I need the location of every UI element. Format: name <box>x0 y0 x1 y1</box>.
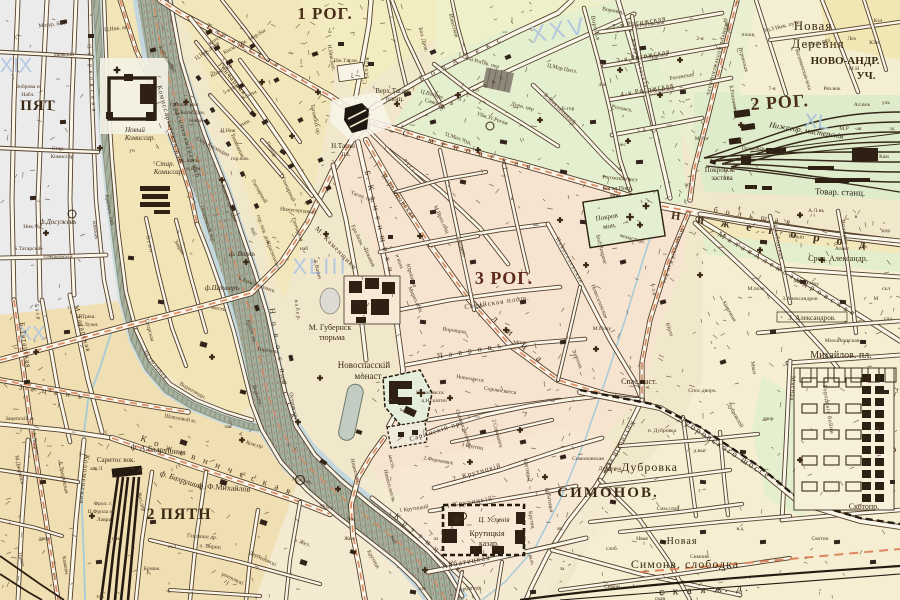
svg-text:Ц. Успенія: Ц. Успенія <box>477 516 509 524</box>
svg-text:пл.: пл. <box>342 150 351 158</box>
svg-text:М.Рог: М.Рог <box>695 136 710 142</box>
svg-text:Комиссар: Комиссар <box>51 154 74 160</box>
svg-text:М.поле: М.поле <box>747 286 765 292</box>
svg-text:Свѣшн. нов: Свѣшн. нов <box>170 101 198 108</box>
svg-text:гор.ков.: гор.ков. <box>231 156 250 162</box>
svg-text:Алекс: Алекс <box>835 246 850 252</box>
svg-text:-ая: -ая <box>855 126 862 132</box>
svg-text:зав.Л: зав.Л <box>90 466 103 472</box>
svg-text:мон.: мон. <box>610 193 622 199</box>
svg-text:ш. Косм.: ш. Косм. <box>180 158 202 164</box>
svg-text:наб: наб <box>300 245 308 252</box>
svg-text:уль: уль <box>882 100 890 106</box>
svg-text:М.Р: М.Р <box>839 126 848 132</box>
svg-text:дор: дор <box>882 228 891 234</box>
svg-text:Скотоп: Скотоп <box>811 536 828 542</box>
svg-text:зав: зав <box>224 424 232 430</box>
svg-text:А.Л.въ: А.Л.въ <box>808 208 824 214</box>
svg-text:Ц.Треш.: Ц.Треш. <box>76 314 96 320</box>
svg-text:Комиссар: Комиссар <box>153 168 183 176</box>
svg-text:Кам: Кам <box>879 154 889 160</box>
svg-text:Симонв.: Симонв. <box>690 554 711 560</box>
svg-text:Новая: Новая <box>667 536 698 547</box>
svg-text:КЗн: КЗн <box>869 40 879 46</box>
svg-text:площ: площ <box>742 32 756 38</box>
svg-text:Ц.Ник: Ц.Ник <box>220 128 235 134</box>
svg-text:дв: дв <box>861 244 867 250</box>
svg-text:Симон: Симон <box>604 584 620 590</box>
svg-text:чес: чес <box>618 142 626 148</box>
svg-text:площ.: площ. <box>386 95 404 103</box>
svg-text:оковскій: оковскій <box>54 51 74 58</box>
svg-text:Б.Татарскій: Б.Татарскій <box>14 245 42 252</box>
svg-text:ц.Ю.кигич: ц.Ю.кигич <box>421 398 447 404</box>
svg-text:казар.: казар. <box>479 539 499 548</box>
svg-text:Стар.: Стар. <box>156 160 175 168</box>
svg-text:монаст: монаст <box>355 371 382 381</box>
svg-text:д.выг: д.выг <box>694 448 708 454</box>
svg-text:XL: XL <box>803 110 829 134</box>
svg-text:Лавра: Лавра <box>97 517 112 523</box>
svg-text:тов: тов <box>96 594 104 600</box>
svg-text:Ник.Чу: Ник.Чу <box>23 224 41 230</box>
svg-text:Кзл: Кзл <box>874 18 883 24</box>
svg-text:зд: зд <box>890 126 895 132</box>
svg-text:Ц.Косм.Дам.: Ц.Косм.Дам. <box>175 110 206 116</box>
svg-text:З. Александров.: З. Александров. <box>788 314 836 322</box>
svg-text:М: М <box>874 296 879 302</box>
svg-text:5. й.: 5. й. <box>637 127 648 134</box>
svg-text:Комиссар.: Комиссар. <box>124 134 156 142</box>
svg-text:п. Дубровка: п. Дубровка <box>648 427 677 434</box>
svg-text:и: и <box>49 388 52 394</box>
svg-text:застава: застава <box>711 174 733 182</box>
svg-text:и Дам.: и Дам. <box>186 166 202 172</box>
svg-text:Верх.Таган: Верх.Таган <box>375 87 409 95</box>
svg-text:Набл.: Набл. <box>21 91 35 98</box>
svg-text:аз: аз <box>434 536 439 542</box>
svg-text:ская: ская <box>655 596 666 600</box>
svg-text:7-я: 7-я <box>768 86 776 92</box>
svg-text:Крутицкія: Крутицкія <box>469 529 504 538</box>
svg-text:двор: двор <box>38 536 49 542</box>
svg-text:М.Поку: М.Поку <box>593 326 612 332</box>
svg-text:Ряз.вок: Ряз.вок <box>823 86 840 92</box>
svg-text:зст: зст <box>684 182 692 188</box>
svg-text:в: в <box>855 214 858 220</box>
svg-text:новой: новой <box>189 117 203 124</box>
svg-text:Симонв. слободка: Симонв. слободка <box>631 557 739 571</box>
svg-text:Б-гор: Б-гор <box>562 106 575 112</box>
svg-text:за: за <box>560 566 565 572</box>
svg-text:Новоспасск: Новоспасск <box>416 390 444 396</box>
svg-text:XIX: XIX <box>0 55 32 77</box>
svg-text:М.Н: М.Н <box>849 66 859 72</box>
svg-text:3.Александров: 3.Александров <box>782 296 818 302</box>
svg-text:Сред. Александр.: Сред. Александр. <box>808 254 867 263</box>
svg-text:сад: сад <box>884 316 892 322</box>
svg-text:слоб.: слоб. <box>606 545 619 552</box>
svg-text:в.д: в.д <box>737 526 744 532</box>
svg-text:аза: аза <box>418 586 426 592</box>
svg-text:ПЯТ: ПЯТ <box>20 98 56 114</box>
svg-text:пак: пак <box>112 536 120 542</box>
svg-text:двор: двор <box>762 416 773 422</box>
svg-text:2 ПЯТН: 2 ПЯТН <box>146 506 211 523</box>
svg-text:тюрьма: тюрьма <box>319 333 345 342</box>
svg-text:Фрол. г.: Фрол. г. <box>94 501 113 507</box>
svg-text:Н.Таган: Н.Таган <box>331 142 355 150</box>
svg-text:УЧ.: УЧ. <box>857 70 876 82</box>
svg-text:Михайловская: Михайловская <box>825 337 860 344</box>
svg-text:2-я: 2-я <box>696 36 704 42</box>
svg-text:Михайлов. пл.: Михайлов. пл. <box>810 350 871 361</box>
svg-text:Зацепскій м.: Зацепскій м. <box>5 415 35 422</box>
svg-text:4-я: 4-я <box>598 82 606 88</box>
svg-text:Покровск.: Покровск. <box>742 146 767 152</box>
svg-text:ф. Волкъ: ф. Волкъ <box>229 250 255 258</box>
svg-text:Стар.: Стар. <box>52 146 65 152</box>
svg-text:скл: скл <box>168 544 176 550</box>
svg-text:Покровск.: Покровск. <box>705 166 736 174</box>
svg-text:Нвая: Нвая <box>636 536 648 542</box>
svg-text:Спос.дворъ: Спос.дворъ <box>688 388 716 394</box>
svg-text:3 РОГ.: 3 РОГ. <box>475 268 533 288</box>
svg-text:Саритос вок.: Саритос вок. <box>97 456 136 464</box>
svg-text:я: я <box>511 196 514 202</box>
svg-text:СИМОНОВ.: СИМОНОВ. <box>557 485 658 501</box>
svg-text:Ц.Фрола и: Ц.Фрола и <box>87 509 112 515</box>
svg-text:Лех: Лех <box>848 36 857 42</box>
svg-text:б: б <box>451 525 454 532</box>
svg-text:М. Губернск: М. Губернск <box>309 323 352 332</box>
svg-text:въ Лужн.: въ Лужн. <box>77 322 99 328</box>
svg-text:ф.Шриверъ: ф.Шриверъ <box>205 284 240 292</box>
svg-text:ф.Досужевъ: ф.Досужевъ <box>40 218 77 226</box>
svg-text:уч: уч <box>129 148 135 154</box>
svg-text:Новоспасскій: Новоспасскій <box>338 360 391 370</box>
svg-text:Богад.Покр.: Богад.Покр. <box>603 186 634 192</box>
svg-text:1 РОГ.: 1 РОГ. <box>297 4 352 23</box>
svg-text:Нж.Таган.: Нж.Таган. <box>334 58 359 64</box>
svg-text:Мпоκ: Мпоκ <box>513 340 527 346</box>
svg-text:Спас. заст.: Спас. заст. <box>621 377 657 386</box>
svg-text:Зоброва и: Зоброва и <box>16 83 39 90</box>
svg-text:Бумаж.: Бумаж. <box>143 566 161 572</box>
svg-text:Озерковскій: Озерковскій <box>43 253 72 260</box>
svg-text:въ: въ <box>557 526 563 532</box>
svg-text:Новый: Новый <box>124 126 145 134</box>
svg-text:Жел.: Жел. <box>344 536 356 542</box>
svg-text:Товар. станц.: Товар. станц. <box>815 186 866 198</box>
svg-text:2 РОГ.: 2 РОГ. <box>750 90 810 114</box>
svg-text:НОВО-АНДР.: НОВО-АНДР. <box>811 55 880 67</box>
svg-text:Скотопр.: Скотопр. <box>849 502 879 511</box>
svg-text:Дубровка: Дубровка <box>599 465 622 472</box>
svg-text:Ал.вок: Ал.вок <box>854 102 871 108</box>
svg-text:Симоновская: Симоновская <box>572 456 604 462</box>
svg-text:въ: въ <box>533 222 539 228</box>
svg-text:скл: скл <box>882 286 890 292</box>
svg-text:Сим.слоб: Сим.слоб <box>657 505 680 512</box>
